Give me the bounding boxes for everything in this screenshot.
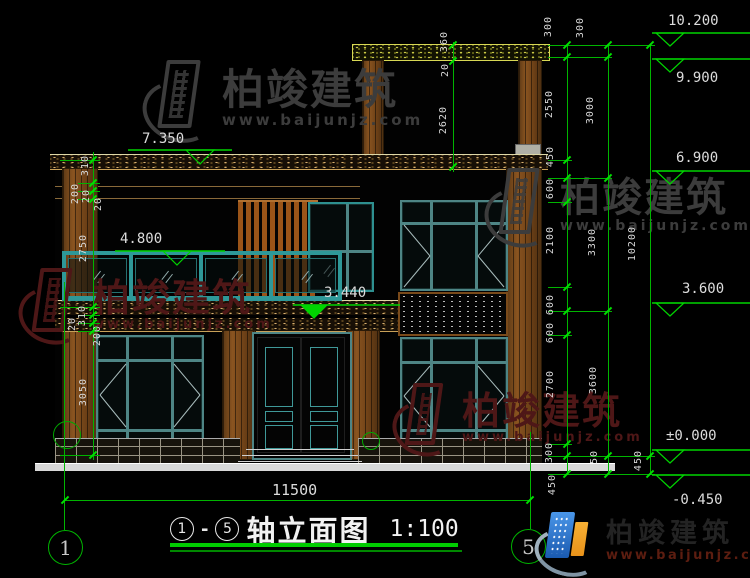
elevation-marker-4800 [115,250,225,267]
penthouse-column-right [518,60,542,157]
door-panel [265,425,293,449]
axis-bubble-number: 5 [522,535,535,559]
dim-label: 2750 [78,234,89,262]
dim-label: 300 [544,442,555,463]
main-roof-slab [50,154,548,170]
dim-label: 20 [93,197,104,211]
elevation-marker-0 [652,449,750,465]
elevation-marker-m450 [652,474,750,490]
title-axis-start-circle: 1 [170,517,194,541]
dim-label: 310 [77,305,88,326]
watermark-bottom-right: 柏竣建筑 www.baijunjz.com [396,383,643,453]
dim-extension-line [548,57,612,58]
elevation-label: 9.900 [676,70,718,86]
elevation-label: 6.900 [676,150,718,166]
door-leaf-right [301,337,345,453]
door-panel [310,347,338,407]
brand-logo: 柏竣建筑 www.baijunjz.com [536,510,750,572]
dim-label: 300 [543,16,554,37]
watermark-url: www.baijunjz.com [222,111,423,129]
watermark-logo-icon [146,60,212,138]
watermark-logo-icon [396,383,452,453]
cad-elevation-drawing: 柏竣建筑 www.baijunjz.com 柏竣建筑 www.baijunjz.… [0,0,750,578]
glass-mark [301,270,310,281]
dim-extension-line [548,311,612,312]
dim-label: 3600 [588,366,599,394]
brand-name: 柏竣建筑 [606,519,750,549]
entry-step [246,449,354,450]
axis-grid-line [64,282,65,530]
dim-label: 2620 [438,106,449,134]
axis-bubble-1: 1 [48,530,83,565]
entry-door [252,332,352,460]
elevation-marker-10200 [652,32,750,48]
elevation-marker-3440 [293,304,400,320]
dim-label: 450 [545,146,556,167]
elevation-label: 10.200 [668,13,719,29]
watermark-logo-icon [488,168,550,244]
dim-label: 3050 [78,378,89,406]
axis-bubble-number: 1 [59,536,72,560]
dim-label: 310 [80,155,91,176]
elevation-label: ±0.000 [666,428,717,444]
elevation-label: 3.440 [324,285,366,301]
door-leaf-left [257,337,301,453]
dim-label: 10200 [627,226,638,261]
dim-extension-line [548,202,572,203]
door-panel [310,425,338,449]
overall-width-dim: 11500 [272,481,317,499]
elevation-label: 3.600 [682,281,724,297]
watermark-mid-left: 柏竣建筑 www.baijunjz.com [22,268,273,342]
dim-label: 200 [70,183,81,204]
elevation-label: -0.450 [672,492,723,508]
spandrel-panel [398,292,508,336]
watermark-brand: 柏竣建筑 [92,279,273,317]
watermark-top: 柏竣建筑 www.baijunjz.com [146,60,423,138]
elevation-marker-6900 [652,170,750,186]
elevation-label: 4.800 [120,231,162,247]
dim-label: 600 [545,178,556,199]
entry-step [242,455,358,456]
entry-step [238,461,362,462]
door-handle-circle [362,432,380,450]
axis-marker-circle [53,421,81,449]
dim-label: 2700 [545,370,556,398]
title-dash: - [201,519,208,540]
watermark-text: 柏竣建筑 www.baijunjz.com [462,392,643,445]
title-underline-thin [170,550,462,552]
dim-label: 600 [545,294,556,315]
dim-label: 600 [545,322,556,343]
elevation-marker-7350 [128,149,232,166]
elevation-label: 7.350 [142,131,184,147]
watermark-text: 柏竣建筑 www.baijunjz.com [560,178,750,234]
roof-beam-line [55,186,360,187]
dim-label: 450 [633,450,644,471]
watermark-text: 柏竣建筑 www.baijunjz.com [222,69,423,129]
dim-extension-line [548,287,572,288]
dim-label: 20 [67,317,78,331]
brand-logo-icon [536,510,596,572]
stone-base-left [55,438,240,465]
title-axis-end-circle: 5 [215,517,239,541]
door-panel [265,411,293,422]
title-underline-thick [170,543,458,547]
dim-label: 3000 [585,96,596,124]
brand-url: www.baijunjz.com [606,548,750,563]
dim-label: 3300 [587,228,598,256]
ground-line [35,463,615,471]
dimension-chain-line [608,45,609,474]
dim-label: 2550 [544,90,555,118]
title-scale: 1:100 [390,516,459,542]
watermark-url: www.baijunjz.com [92,317,273,332]
brand-logo-text: 柏竣建筑 www.baijunjz.com [606,519,750,564]
dim-label: 360 [439,31,450,52]
watermark-brand: 柏竣建筑 [222,69,423,111]
dimension-chain-line [650,45,651,474]
dim-label: 300 [575,17,586,38]
door-panel [310,411,338,422]
casement-x-lines [98,337,202,454]
bottom-dimension-line [65,500,530,501]
dim-extension-line [548,178,612,179]
axis-grid-line [530,432,531,529]
dimension-chain-line [567,45,568,474]
elevation-marker-3600 [652,302,750,318]
dim-label: 450 [589,450,600,471]
dim-label: 2100 [545,226,556,254]
dim-label: 450 [547,474,558,495]
door-panel [265,347,293,407]
watermark-text: 柏竣建筑 www.baijunjz.com [92,279,273,332]
